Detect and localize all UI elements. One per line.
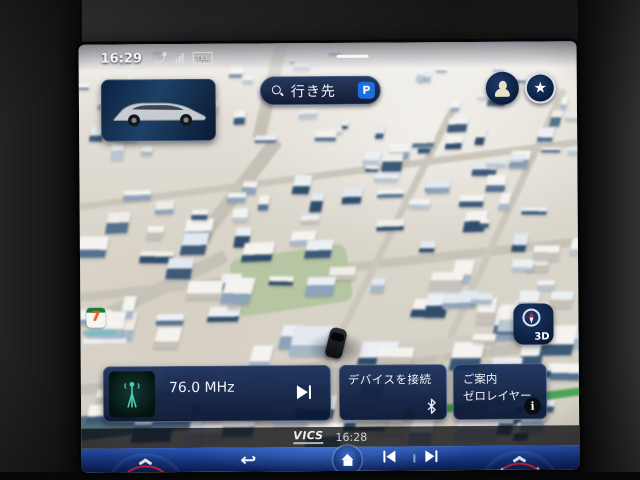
- map-building: [110, 143, 124, 159]
- map-building: [315, 131, 338, 141]
- chevron-up-icon: [138, 457, 152, 465]
- climate-control-bar: ↩: [81, 445, 579, 472]
- map-building: [373, 172, 399, 183]
- place-label: [83, 330, 127, 346]
- map-building: [341, 188, 363, 205]
- map-building: [537, 128, 554, 142]
- map-building: [145, 226, 164, 239]
- map-building: [362, 152, 381, 167]
- map-building: [269, 276, 294, 285]
- ego-vehicle-marker: [319, 326, 353, 362]
- favorites-button[interactable]: ★: [525, 72, 556, 103]
- tel-icon: TEL: [193, 52, 213, 64]
- guidance-widget[interactable]: ご案内 ゼロレイヤー i: [453, 363, 547, 420]
- gps-icon: [154, 52, 167, 65]
- map-building: [447, 118, 469, 133]
- map-building: [304, 239, 333, 258]
- map-building: [381, 153, 404, 171]
- map-building: [185, 281, 224, 300]
- back-button[interactable]: ↩: [233, 450, 263, 470]
- radio-tower-icon: [109, 371, 155, 417]
- map-building: [549, 291, 575, 308]
- parking-badge[interactable]: P: [358, 82, 375, 99]
- vics-logo: VICS: [293, 430, 323, 444]
- map-building: [477, 95, 487, 100]
- map-building: [376, 219, 404, 231]
- map-building: [298, 109, 318, 119]
- car-image: [108, 94, 211, 131]
- next-track-button[interactable]: [425, 450, 437, 462]
- info-icon[interactable]: i: [524, 398, 541, 415]
- next-station-button[interactable]: [296, 385, 311, 399]
- map-view-mode: 3D: [534, 331, 549, 342]
- map-building: [243, 76, 254, 83]
- map-building: [232, 208, 248, 222]
- guidance-title: ご案内: [463, 372, 498, 386]
- dashboard-trim: [0, 0, 82, 480]
- star-icon: ★: [534, 80, 548, 95]
- connect-device-widget[interactable]: デバイスを接続: [339, 364, 447, 421]
- map-building: [532, 246, 561, 261]
- dashboard-trim: [0, 472, 640, 480]
- compass-icon: [522, 309, 540, 327]
- map-building: [470, 293, 493, 304]
- map-building: [472, 334, 497, 344]
- infotainment-screen: 16:29 TEL 行き先 P: [79, 41, 580, 472]
- map-building: [459, 195, 484, 207]
- avatar-icon: [495, 80, 510, 96]
- map-building: [155, 314, 184, 326]
- map-building: [521, 208, 547, 215]
- map-building: [509, 155, 525, 164]
- destination-search[interactable]: 行き先 P: [260, 76, 381, 106]
- guidance-layer: ゼロレイヤー: [463, 389, 532, 403]
- map-building: [191, 210, 208, 220]
- vehicle-status-widget[interactable]: [101, 79, 216, 142]
- map-building: [226, 192, 246, 202]
- map-building: [300, 215, 319, 224]
- signal-icon: [176, 53, 184, 63]
- map-building: [425, 180, 450, 193]
- dashboard-trim: [0, 0, 640, 44]
- clock: 16:29: [101, 51, 142, 66]
- left-temperature-dial[interactable]: [103, 453, 188, 473]
- map-building: [412, 137, 435, 147]
- connect-device-label: デバイスを接続: [348, 371, 438, 388]
- map-building: [165, 258, 194, 279]
- previous-track-button[interactable]: [383, 451, 395, 463]
- map-building: [241, 242, 275, 262]
- chevron-up-icon: [512, 455, 526, 463]
- map-building: [155, 201, 174, 214]
- seven-eleven-poi[interactable]: 7: [86, 308, 105, 328]
- home-button[interactable]: [333, 446, 361, 473]
- map-building: [537, 281, 555, 290]
- map-building: [540, 147, 560, 153]
- radio-frequency: 76.0 MHz: [169, 379, 297, 396]
- map-orientation-button[interactable]: 3D: [513, 303, 553, 344]
- bluetooth-icon: [426, 398, 437, 414]
- map-building: [444, 135, 463, 149]
- map-building: [304, 277, 336, 296]
- dashboard-photo: 16:29 TEL 行き先 P: [0, 0, 640, 480]
- map-building: [377, 189, 404, 198]
- map-building: [480, 219, 489, 228]
- widget-row: 76.0 MHz デバイスを接続 ご案内 ゼロレイヤー i: [81, 361, 579, 424]
- map-building: [123, 190, 152, 201]
- right-temperature-dial[interactable]: [477, 450, 562, 472]
- drag-handle[interactable]: [337, 55, 369, 58]
- search-label: 行き先: [291, 80, 358, 100]
- map-building: [105, 212, 131, 234]
- map-building: [511, 260, 534, 271]
- search-icon: [272, 85, 283, 96]
- map-building: [254, 136, 277, 143]
- map-building: [435, 68, 447, 72]
- map-building: [79, 84, 90, 90]
- home-icon: [341, 455, 354, 466]
- vics-time: 16:28: [335, 430, 367, 443]
- dashboard-trim: [578, 0, 640, 480]
- map-building: [365, 165, 379, 172]
- map-building: [79, 236, 109, 257]
- profile-button[interactable]: [486, 72, 519, 105]
- map-building: [428, 272, 465, 292]
- seven-eleven-icon: 7: [86, 310, 105, 325]
- map-building: [485, 161, 507, 167]
- map-building: [233, 111, 246, 125]
- status-bar: 16:29 TEL: [79, 41, 577, 70]
- radio-widget[interactable]: 76.0 MHz: [103, 365, 331, 423]
- map-building: [408, 200, 431, 209]
- map-building: [485, 174, 506, 191]
